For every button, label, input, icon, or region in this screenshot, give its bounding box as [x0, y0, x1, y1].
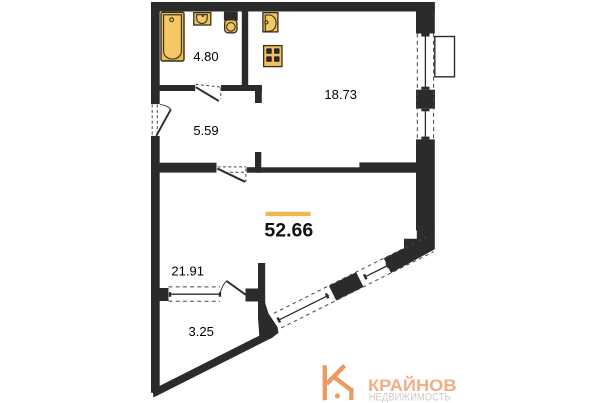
svg-text:18.73: 18.73: [324, 87, 357, 102]
svg-text:3.25: 3.25: [189, 324, 214, 339]
svg-text:НЕДВИЖИМОСТЬ: НЕДВИЖИМОСТЬ: [369, 392, 451, 403]
svg-text:21.91: 21.91: [171, 263, 204, 278]
svg-text:4.80: 4.80: [193, 49, 218, 64]
svg-text:52.66: 52.66: [264, 219, 313, 241]
svg-text:5.59: 5.59: [193, 123, 218, 138]
